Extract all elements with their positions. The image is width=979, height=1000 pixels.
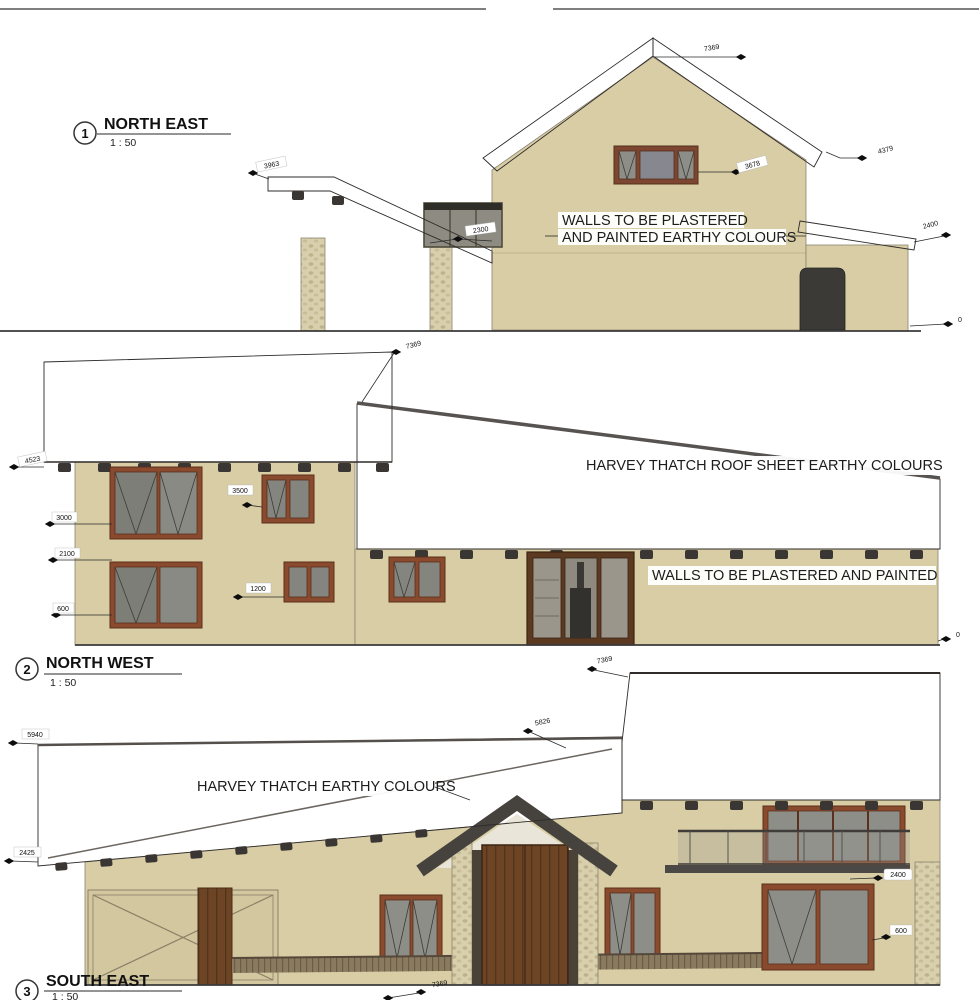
dimension-ridge: 7369 <box>587 655 628 677</box>
sidelight <box>472 850 482 985</box>
roof-finish-note: HARVEY THATCH EARTHY COLOURS <box>193 777 470 800</box>
dim-text: 5940 <box>27 732 43 739</box>
sidelight <box>568 850 578 985</box>
view-title-north-west: 2 NORTH WEST 1 : 50 <box>16 655 182 689</box>
main-roof <box>357 404 940 549</box>
dim-text: 7369 <box>431 980 448 990</box>
dim-text: 3000 <box>56 515 72 522</box>
elevation-2-north-west: HARVEY THATCH ROOF SHEET EARTHY COLOURS … <box>9 340 960 689</box>
dimension-roof-edge: 5826 <box>523 717 566 748</box>
view-title: NORTH WEST <box>46 655 154 672</box>
dim-text: 600 <box>57 606 69 613</box>
lower-window-large <box>110 562 202 628</box>
lower-window-band <box>762 884 874 970</box>
elevation-sheet: WALLS TO BE PLASTERED AND PAINTED EARTHY… <box>0 0 979 1000</box>
balcony-floor <box>665 865 910 873</box>
dimension-wall-right: 2400 <box>914 220 951 242</box>
view-title: NORTH EAST <box>104 116 208 133</box>
dimension-roof-left: 3963 <box>248 156 287 179</box>
balcony-railing <box>665 830 910 873</box>
stove <box>570 588 591 638</box>
stone-pillar <box>452 843 472 985</box>
wall-finish-note: WALLS TO BE PLASTERED AND PAINTED <box>648 566 938 585</box>
dimension-ground: 0 <box>938 632 960 642</box>
view-scale: 1 : 50 <box>52 991 78 1000</box>
dim-text: 2400 <box>890 872 906 879</box>
lower-window-small <box>284 562 334 602</box>
note-text: WALLS TO BE PLASTERED AND PAINTED <box>652 568 938 584</box>
dim-text: 2100 <box>59 551 75 558</box>
stone-quoin <box>915 862 940 985</box>
elevation-1-north-east: WALLS TO BE PLASTERED AND PAINTED EARTHY… <box>0 38 962 331</box>
gable-window <box>614 146 698 184</box>
view-number: 1 <box>81 126 88 141</box>
stone-pillar <box>430 247 452 331</box>
stove-flue <box>577 562 584 590</box>
roof-finish-note: HARVEY THATCH ROOF SHEET EARTHY COLOURS <box>581 456 943 475</box>
view-scale: 1 : 50 <box>110 137 136 149</box>
dimension-eave: 4523 <box>9 451 47 470</box>
view-title-north-east: 1 NORTH EAST 1 : 50 <box>74 116 231 149</box>
note-text: HARVEY THATCH ROOF SHEET EARTHY COLOURS <box>586 458 943 474</box>
side-door <box>198 888 232 985</box>
elevation-3-south-east: HARVEY THATCH EARTHY COLOURS 7369 5826 5… <box>4 655 940 1000</box>
right-roof <box>622 673 940 800</box>
mid-window <box>389 557 445 602</box>
view-number: 3 <box>23 984 30 999</box>
dim-text: 600 <box>895 928 907 935</box>
rafter-end <box>292 191 304 200</box>
window-right-of-entrance <box>605 888 660 962</box>
dimension-roof-right: 4379 <box>826 145 894 161</box>
glazed-door <box>527 552 634 645</box>
dimension-wall-left: 2425 <box>4 847 41 864</box>
dim-text: 7369 <box>703 44 720 54</box>
dim-text: 2425 <box>19 850 35 857</box>
dimension-eave-left: 5940 <box>8 729 49 746</box>
note-text: HARVEY THATCH EARTHY COLOURS <box>197 779 456 795</box>
note-line-2: AND PAINTED EARTHY COLOURS <box>562 230 796 246</box>
stone-pillar <box>301 238 325 331</box>
upper-window-small <box>262 475 314 523</box>
elevations-drawing: WALLS TO BE PLASTERED AND PAINTED EARTHY… <box>0 0 979 1000</box>
dim-text: 0 <box>956 632 960 639</box>
dim-text: 1200 <box>250 586 266 593</box>
dim-text: 2400 <box>922 220 939 231</box>
note-line-1: WALLS TO BE PLASTERED <box>562 213 748 229</box>
upper-roof <box>44 352 392 462</box>
dim-text: 5826 <box>534 717 551 727</box>
dim-text: 7369 <box>596 655 613 665</box>
left-window-pair <box>380 895 442 965</box>
dim-text: 0 <box>958 317 962 324</box>
rafter-end <box>332 196 344 205</box>
gable-wall <box>492 57 806 330</box>
dim-text: 3500 <box>232 488 248 495</box>
dimension-ridge: 7369 <box>655 44 746 60</box>
dimension-ground: 0 <box>910 317 962 327</box>
dim-text: 4379 <box>877 145 894 156</box>
view-title: SOUTH EAST <box>46 973 149 990</box>
water-tank <box>800 268 845 330</box>
dim-text: 7369 <box>405 340 422 351</box>
view-number: 2 <box>23 662 30 677</box>
upper-window-large <box>110 467 202 539</box>
view-scale: 1 : 50 <box>50 677 76 689</box>
